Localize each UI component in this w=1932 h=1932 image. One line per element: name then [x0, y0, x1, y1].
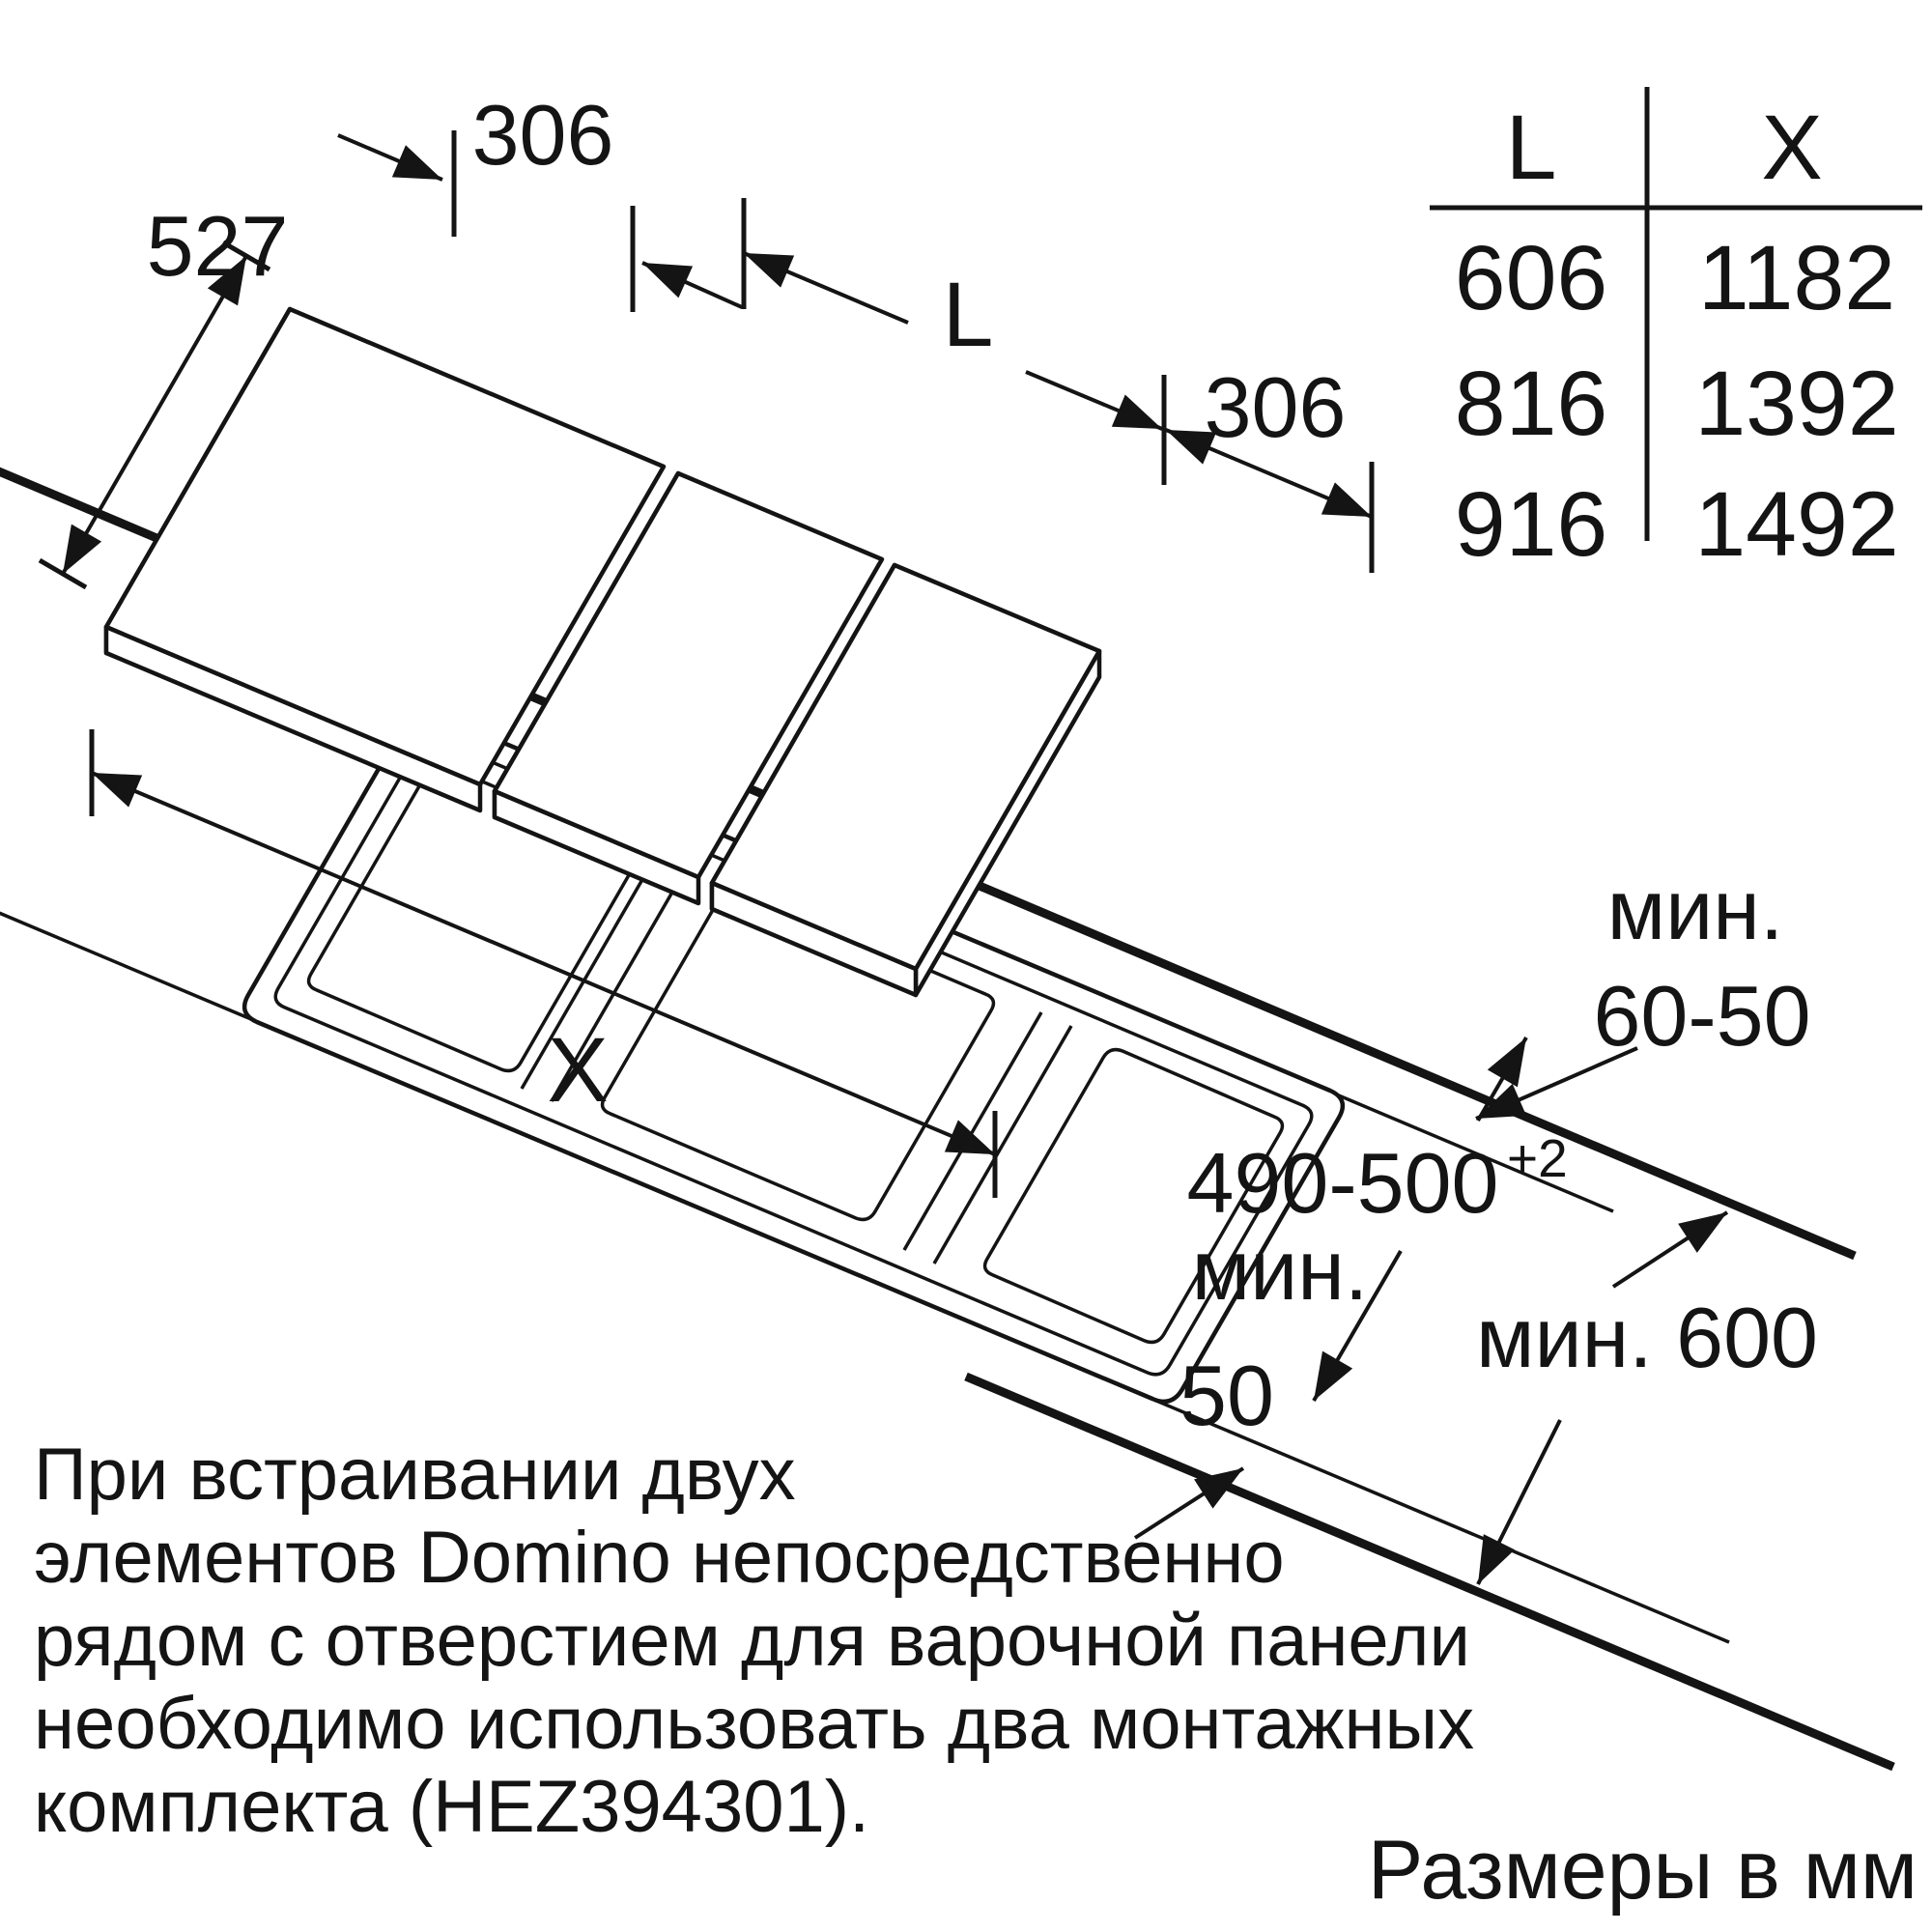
note-line-4: необходимо использовать два монтажных — [34, 1683, 1474, 1765]
dim-line-L-b — [1026, 372, 1162, 429]
dim-label-L: L — [943, 264, 994, 366]
label-min-back: мин. — [1607, 862, 1784, 957]
dim-tick — [40, 560, 86, 587]
arrow-worktop-depth-front — [1478, 1420, 1560, 1584]
table-header-X: X — [1761, 97, 1822, 199]
note-line-1: При встраивании двух — [34, 1434, 796, 1516]
dim-label-306-right: 306 — [1205, 359, 1347, 455]
table-cell-l3: 916 — [1455, 473, 1608, 576]
label-back-clearance: 60-50 — [1593, 968, 1810, 1064]
table-cell-x3: 1492 — [1694, 473, 1898, 576]
dim-label-306-top: 306 — [472, 87, 614, 183]
note-line-5: комплекта (HEZ394301). — [34, 1766, 869, 1848]
table-cell-x1: 1182 — [1698, 227, 1895, 329]
table-cell-l2: 816 — [1455, 353, 1608, 455]
label-min-front: мин. — [1192, 1222, 1369, 1318]
note-line-2: элементов Domino непосредственно — [34, 1517, 1285, 1599]
table-header-L: L — [1506, 97, 1557, 199]
arrow-worktop-depth-back — [1613, 1212, 1727, 1287]
dim-arrow — [642, 263, 742, 307]
installation-diagram: 527 306 L 306 X 490-500 +2 мин. 60-50 ми… — [0, 0, 1932, 1932]
dim-line-L-a — [744, 253, 908, 323]
dim-arrow — [338, 135, 442, 180]
note-line-3: рядом с отверстием для варочной панели — [34, 1600, 1470, 1682]
dim-label-527: 527 — [147, 198, 289, 294]
table-cell-l1: 606 — [1455, 227, 1608, 329]
dim-label-490-500: 490-500 — [1187, 1135, 1499, 1231]
label-worktop-depth: мин. 600 — [1476, 1290, 1818, 1385]
units-caption: Размеры в мм — [1368, 1824, 1918, 1917]
dim-label-490-500-tolerance: +2 — [1507, 1128, 1568, 1188]
size-table: L X 606 1182 816 1392 916 1492 — [1430, 87, 1922, 576]
table-cell-x2: 1392 — [1694, 353, 1898, 455]
label-front-clearance: 50 — [1179, 1348, 1274, 1443]
dim-label-X: X — [547, 1019, 608, 1122]
